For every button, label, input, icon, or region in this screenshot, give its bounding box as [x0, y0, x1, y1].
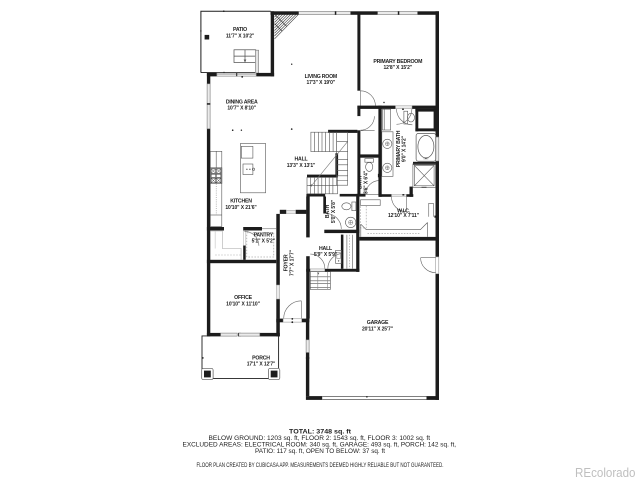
svg-text:DINING AREA: DINING AREA	[226, 99, 258, 105]
svg-text:KITCHEN: KITCHEN	[230, 199, 252, 205]
svg-text:HALL: HALL	[295, 157, 309, 163]
svg-text:LIVING ROOM: LIVING ROOM	[305, 74, 337, 80]
svg-text:OFFICE: OFFICE	[234, 295, 252, 301]
svg-text:3'6" X 6'4": 3'6" X 6'4"	[364, 170, 370, 194]
svg-text:20'11" X 25'7": 20'11" X 25'7"	[362, 326, 394, 332]
svg-text:FOYER: FOYER	[283, 254, 289, 271]
svg-text:12'8" X 15'2": 12'8" X 15'2"	[383, 65, 412, 71]
svg-text:10'7" X 8'10": 10'7" X 8'10"	[227, 106, 256, 112]
svg-text:PORCH: PORCH	[252, 355, 270, 361]
svg-text:PATIO: PATIO	[233, 27, 247, 33]
svg-text:10'10" X 11'10": 10'10" X 11'10"	[226, 302, 260, 308]
svg-text:PRIMARY BEDROOM: PRIMARY BEDROOM	[373, 59, 422, 65]
svg-text:5'9" X 5'9": 5'9" X 5'9"	[314, 252, 338, 258]
svg-text:FLOOR PLAN CREATED BY CUBICASA: FLOOR PLAN CREATED BY CUBICASA APP. MEAS…	[197, 462, 444, 469]
svg-text:5'1" X 5'2": 5'1" X 5'2"	[252, 239, 276, 245]
svg-text:HALL: HALL	[319, 246, 333, 252]
svg-text:PANTRY: PANTRY	[254, 232, 274, 238]
svg-text:REcolorado: REcolorado	[575, 465, 636, 480]
svg-text:12'10" X 7'11": 12'10" X 7'11"	[388, 213, 420, 219]
svg-text:GARAGE: GARAGE	[367, 320, 389, 326]
svg-text:17'3" X 19'0": 17'3" X 19'0"	[306, 80, 335, 86]
svg-text:13'3" X 13'1": 13'3" X 13'1"	[287, 163, 316, 169]
svg-text:10'10" X 21'6": 10'10" X 21'6"	[225, 205, 257, 211]
svg-text:9'0" X 14'2": 9'0" X 14'2"	[402, 135, 408, 162]
svg-text:PATIO: 117 sq. ft, OPEN TO BEL: PATIO: 117 sq. ft, OPEN TO BELOW: 37 sq.…	[255, 448, 385, 455]
svg-text:5'0" X 5'8": 5'0" X 5'8"	[331, 199, 337, 223]
svg-text:7'7" X 17'7": 7'7" X 17'7"	[290, 249, 296, 276]
svg-text:11'7" X 10'2": 11'7" X 10'2"	[226, 33, 255, 39]
svg-text:17'1" X 12'7": 17'1" X 12'7"	[247, 362, 276, 368]
